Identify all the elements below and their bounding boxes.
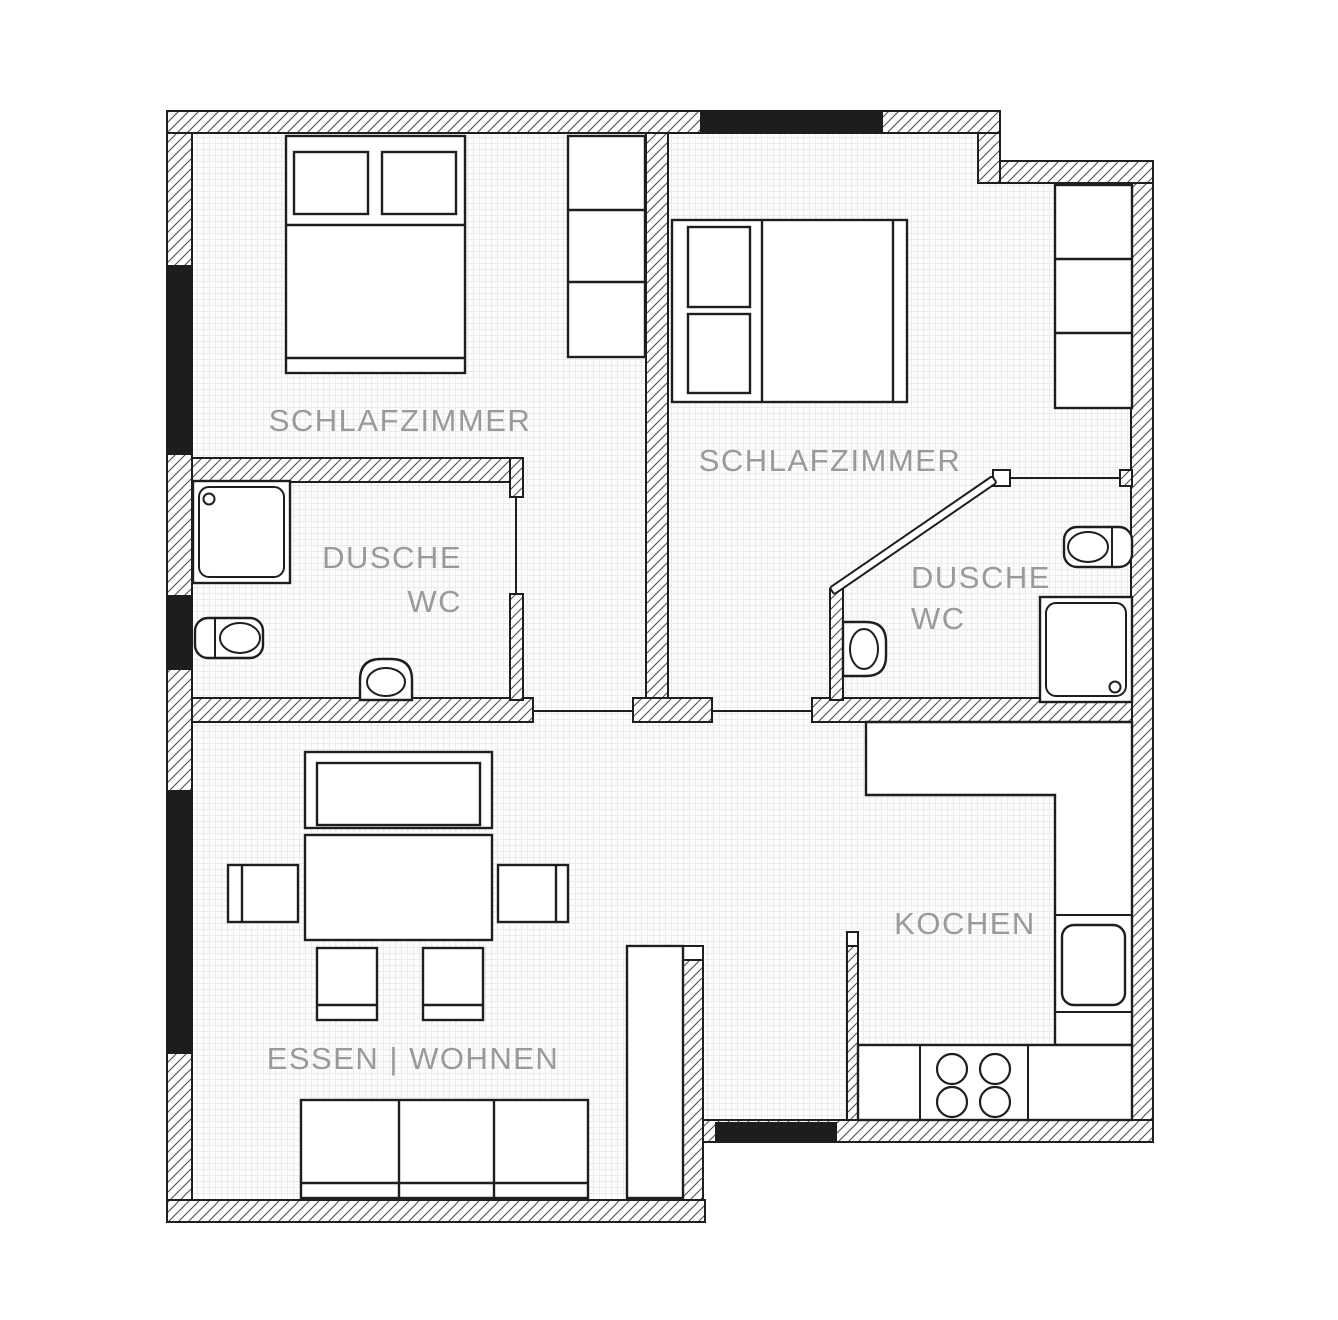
room-label-bedroom-right: SCHLAFZIMMER [699,443,962,478]
dining-bench-seat [317,763,480,825]
chair-right [498,865,568,922]
wall-bath2-left [830,589,843,700]
bedroom-1-furniture [286,136,645,373]
burner-icon [937,1054,967,1084]
wall-top-right-step-vertical [978,133,1000,183]
chair-left [228,865,298,922]
wall-bedroom-divider [646,133,668,698]
wall-top-right-step-horizontal [1000,161,1153,183]
room-label-living: ESSEN | WOHNEN [267,1041,560,1076]
wall-divider-foot [633,698,712,722]
room-label-bath-left-line1: DUSCHE [322,540,462,575]
room-label-kitchen: KOCHEN [894,906,1036,941]
floor-plan-svg: SCHLAFZIMMER SCHLAFZIMMER DUSCHE WC DUSC… [0,0,1338,1320]
wardrobe-2 [1055,185,1132,408]
bed-1-pillow-left [294,152,368,214]
wall-bottom-left [167,1200,705,1222]
window-top [700,111,883,133]
shower-2-drain-icon [1110,682,1121,693]
toilet-2-bowl [1068,532,1108,562]
shower-1-drain-icon [204,494,215,505]
dining-table [305,835,492,940]
entry-wall-cap [683,946,703,960]
window-left-living [167,790,193,1054]
toilet-1-bowl [220,623,260,653]
entrance-door-opening [715,1122,837,1141]
room-label-bedroom-left: SCHLAFZIMMER [269,403,532,438]
wall-corridor-left [192,698,533,722]
wall-right [1131,183,1153,1142]
wall-bath1-right [510,594,523,700]
kitchen-wall-cap [847,932,858,946]
floor-plan-page: SCHLAFZIMMER SCHLAFZIMMER DUSCHE WC DUSC… [0,0,1338,1320]
room-label-bath-right-line1: DUSCHE [911,560,1051,595]
burner-icon [980,1054,1010,1084]
wall-entry [683,946,703,1200]
bed-2-pillow-bottom [688,314,750,393]
entry-cabinet [627,946,683,1198]
burner-icon [937,1087,967,1117]
room-label-bath-left-line2: WC [407,584,462,619]
bed-2-pillow-top [688,227,750,307]
kitchen-sink [1062,925,1125,1005]
window-left-bedroom [167,265,193,455]
wall-bath1-top [192,458,523,482]
washbasin-1-bowl [367,668,405,696]
burner-icon [980,1087,1010,1117]
washbasin-2-bowl [850,629,878,669]
wall-kitchen [847,932,858,1120]
window-left-bath [167,595,193,670]
wardrobe-1 [568,136,645,357]
wall-bath1-door-post [510,458,523,497]
wall-bath2-right-post [1120,470,1132,486]
chair-bottom-1 [317,948,377,1020]
bed-1-pillow-right [382,152,456,214]
chair-bottom-2 [423,948,483,1020]
room-label-bath-right-line2: WC [911,601,966,636]
